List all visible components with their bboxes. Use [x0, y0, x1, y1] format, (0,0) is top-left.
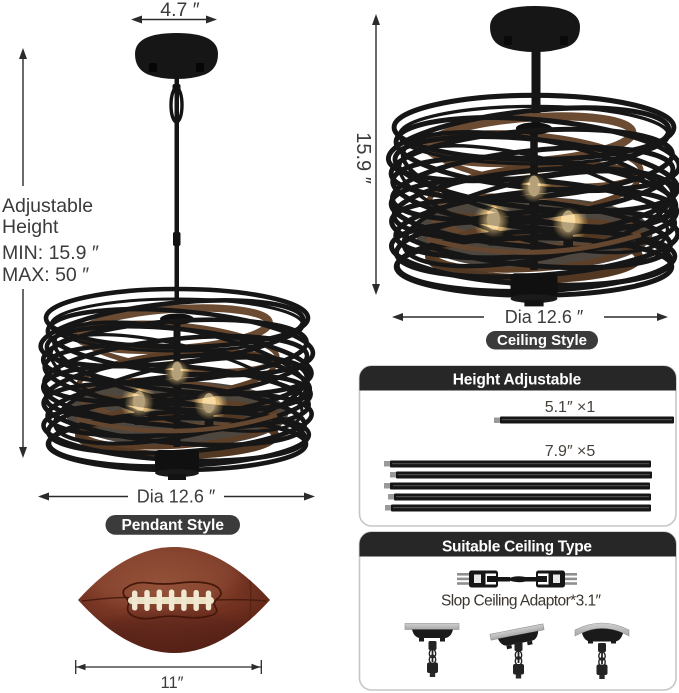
svg-text:Height Adjustable: Height Adjustable — [453, 372, 582, 389]
svg-text:Suitable Ceiling Type: Suitable Ceiling Type — [442, 539, 592, 556]
svg-text:Pendant Style: Pendant Style — [121, 517, 224, 534]
svg-text:Adjustable: Adjustable — [2, 195, 93, 217]
svg-text:Ceiling Style: Ceiling Style — [497, 332, 587, 349]
svg-text:7.9″ ×5: 7.9″ ×5 — [545, 443, 596, 460]
svg-text:Dia 12.6 ″: Dia 12.6 ″ — [505, 307, 584, 327]
svg-text:11″: 11″ — [161, 674, 184, 692]
svg-text:Dia 12.6 ″: Dia 12.6 ″ — [137, 487, 216, 507]
svg-text:MAX: 50 ″: MAX: 50 ″ — [2, 264, 89, 286]
svg-text:MIN: 15.9 ″: MIN: 15.9 ″ — [2, 242, 99, 264]
svg-text:Slop Ceiling Adaptor*3.1″: Slop Ceiling Adaptor*3.1″ — [441, 593, 602, 610]
svg-text:5.1″ ×1: 5.1″ ×1 — [545, 399, 596, 416]
svg-text:Height: Height — [2, 216, 59, 238]
svg-text:4.7 ″: 4.7 ″ — [160, 0, 200, 21]
svg-text:15.9 ″: 15.9 ″ — [352, 132, 374, 184]
